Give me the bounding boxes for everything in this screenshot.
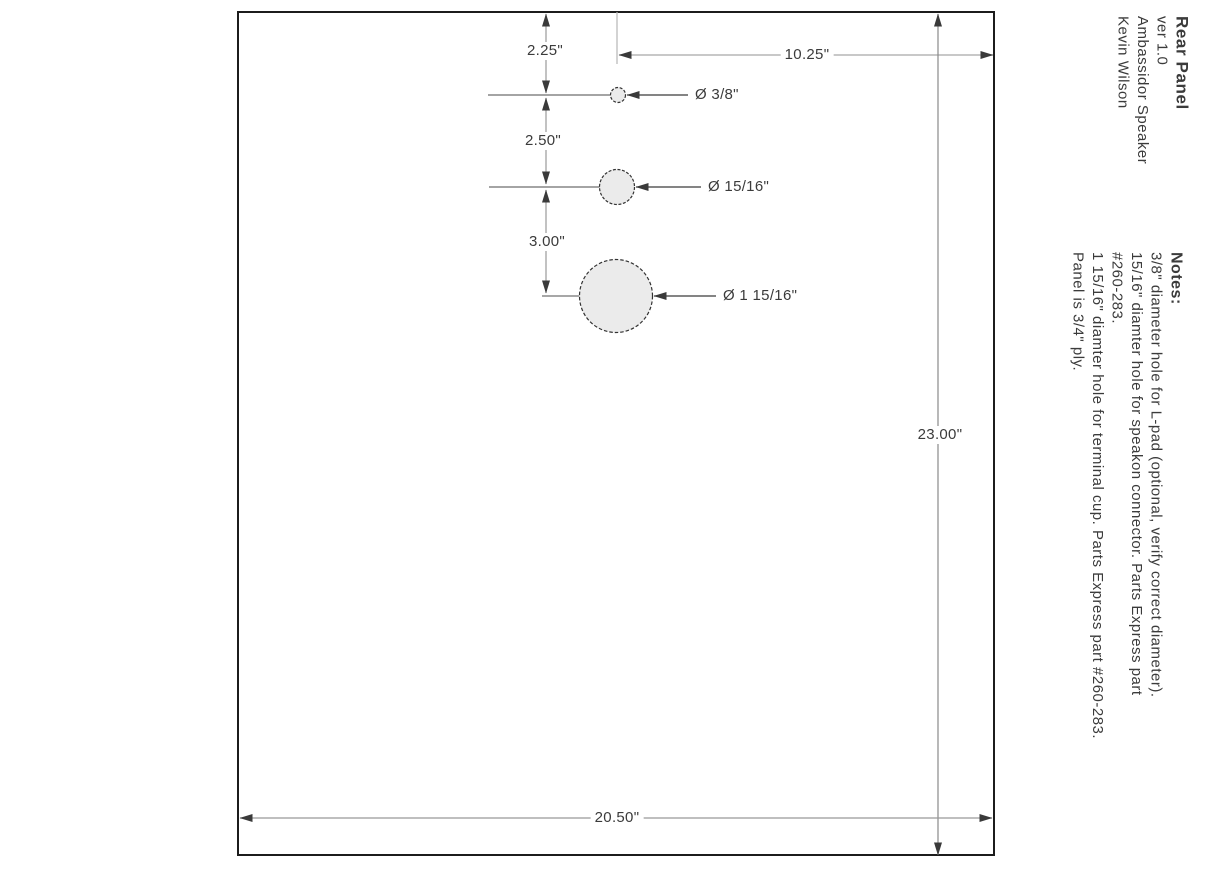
dim-label-hole2-hole3: 3.00": [525, 233, 569, 251]
dim-label-right-offset: 10.25": [781, 46, 834, 64]
hole-label-speakon: Ø 15/16": [705, 178, 772, 196]
hole-label-lpad: Ø 3/8": [692, 86, 742, 104]
dim-label-panel-width: 20.50": [591, 809, 644, 827]
drawing-version: ver 1.0: [1152, 16, 1172, 164]
note-line-2: 15/16" diamter hole for speakon connecto…: [1127, 252, 1147, 739]
hole-terminal-cup: [580, 260, 653, 333]
author-name: Kevin Wilson: [1113, 16, 1133, 164]
notes-block: Notes: 3/8" diameter hole for L-pad (opt…: [1068, 252, 1186, 739]
notes-heading: Notes:: [1166, 252, 1186, 739]
dimension-lines-layer: [0, 0, 1215, 874]
hole-lpad: [611, 88, 626, 103]
dim-label-hole1-hole2: 2.50": [521, 132, 565, 150]
hole-speakon: [600, 170, 635, 205]
drawing-title: Rear Panel: [1172, 16, 1193, 164]
note-line-3: 1 15/16" diamter hole for terminal cup. …: [1088, 252, 1108, 739]
note-line-4: Panel is 3/4" ply.: [1068, 252, 1088, 739]
hole-label-terminal-cup: Ø 1 15/16": [720, 287, 800, 305]
hole-leader-arrows: [627, 95, 716, 296]
dim-label-top-offset: 2.25": [523, 42, 567, 60]
note-line-1: 3/8" diameter hole for L-pad (optional, …: [1146, 252, 1166, 739]
note-line-2b: #260-283.: [1107, 252, 1127, 739]
dim-label-panel-height: 23.00": [914, 426, 967, 444]
title-block: Rear Panel ver 1.0 Ambassidor Speaker Ke…: [1113, 16, 1193, 164]
drawing-canvas: 2.25" 2.50" 3.00" 10.25" 23.00" 20.50" Ø…: [0, 0, 1215, 874]
project-name: Ambassidor Speaker: [1133, 16, 1153, 164]
